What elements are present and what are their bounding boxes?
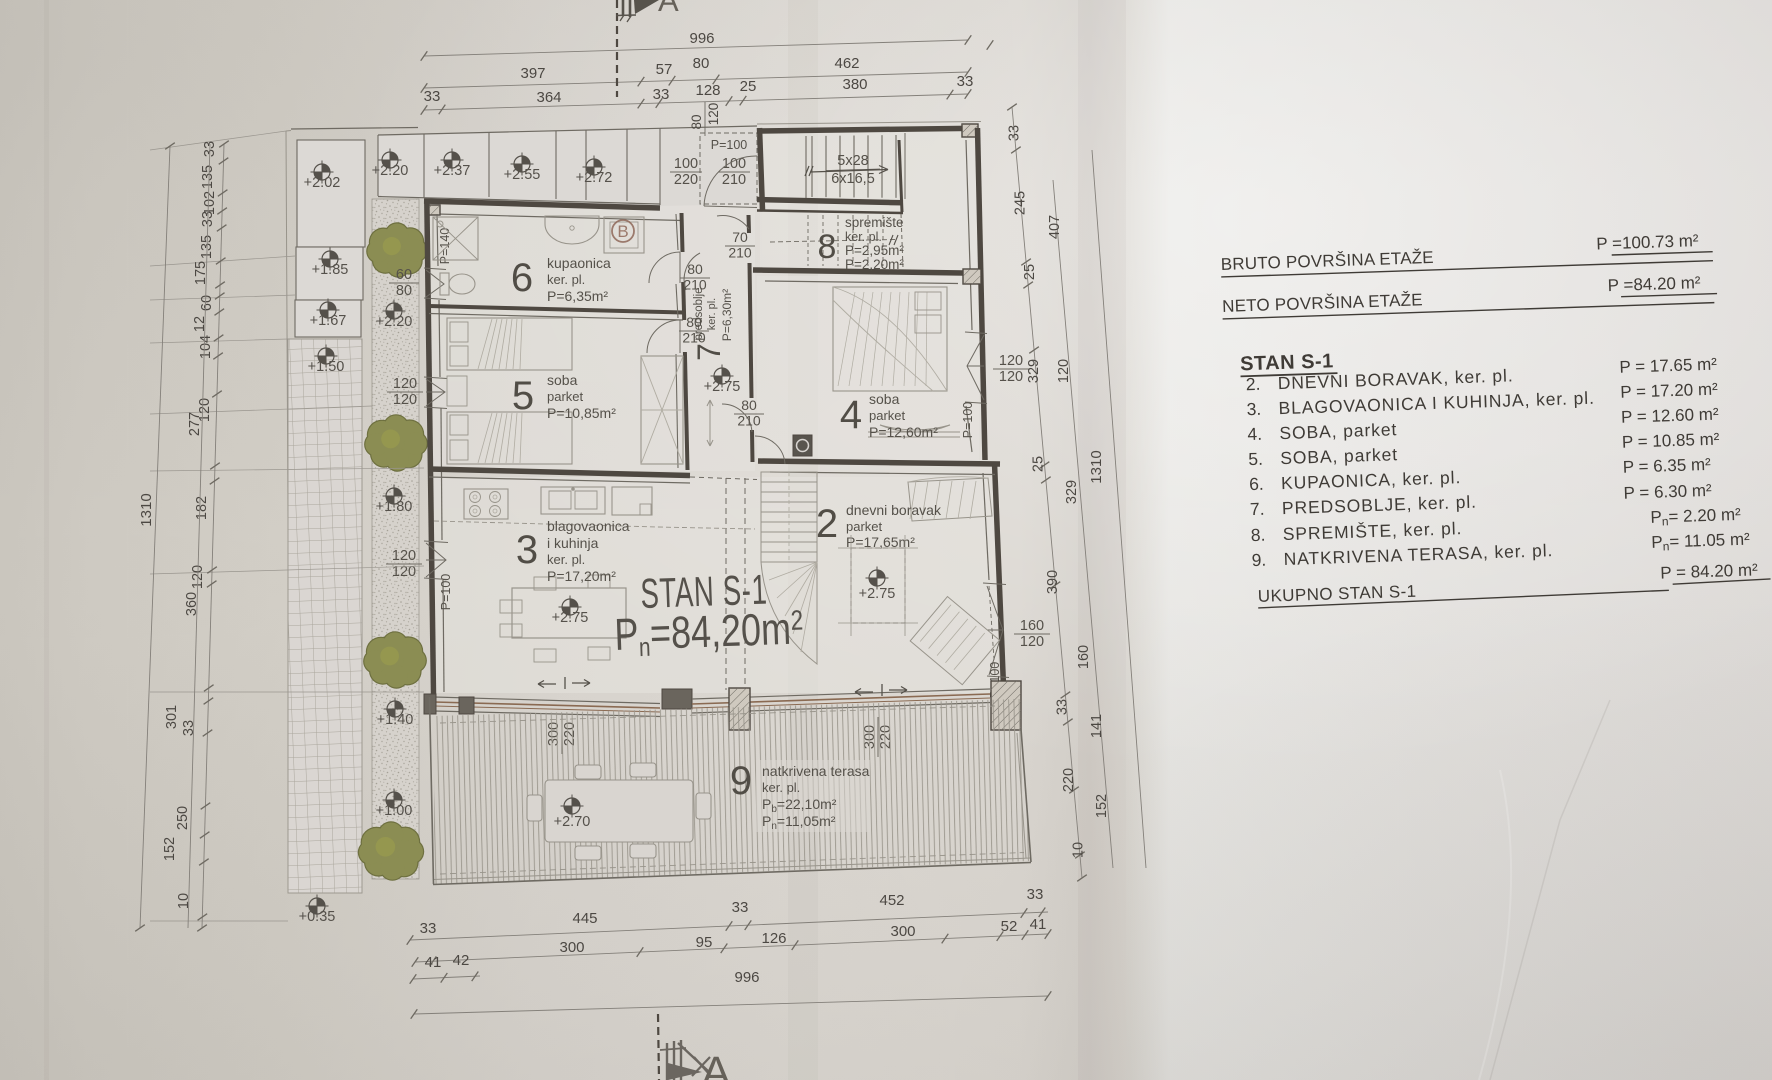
svg-text:3: 3 [516, 528, 538, 572]
svg-text:25: 25 [1030, 456, 1046, 472]
svg-text:ker. pl.: ker. pl. [762, 780, 800, 795]
svg-text:P=100: P=100 [961, 402, 975, 439]
svg-text:445: 445 [572, 910, 597, 927]
svg-text:P = 6.30 m²: P = 6.30 m² [1623, 481, 1712, 503]
svg-text:parket: parket [869, 408, 906, 423]
svg-text:+1.85: +1.85 [312, 262, 349, 278]
svg-text:33: 33 [957, 73, 974, 90]
svg-text:120: 120 [1056, 359, 1072, 383]
svg-text:P=17,20m²: P=17,20m² [547, 568, 616, 584]
svg-text:+1.00: +1.00 [376, 803, 413, 819]
svg-text:ker. pl.: ker. pl. [845, 230, 882, 244]
svg-text:152: 152 [1094, 794, 1110, 818]
svg-text:ker. pl.: ker. pl. [547, 272, 585, 287]
svg-text:+1.40: +1.40 [377, 712, 414, 728]
svg-text:60: 60 [396, 267, 412, 283]
svg-text:996: 996 [689, 30, 714, 47]
svg-text:P = 6.35 m²: P = 6.35 m² [1622, 455, 1711, 477]
svg-text:+2.75: +2.75 [552, 610, 589, 626]
svg-text:95: 95 [696, 934, 713, 951]
svg-text:spremište: spremište [845, 215, 904, 230]
svg-text:25: 25 [740, 78, 757, 95]
svg-text:P =84.20 m²: P =84.20 m² [1607, 273, 1701, 295]
svg-text:160: 160 [1076, 645, 1092, 669]
svg-text:60: 60 [199, 295, 215, 311]
svg-text:70: 70 [732, 229, 748, 245]
svg-text:SOBA, parket: SOBA, parket [1279, 419, 1397, 443]
svg-text:soba: soba [869, 391, 900, 407]
svg-text:+1.67: +1.67 [310, 313, 347, 329]
svg-text:452: 452 [879, 892, 904, 909]
svg-text:407: 407 [1047, 215, 1063, 239]
svg-text:2.: 2. [1245, 374, 1260, 394]
svg-text:33: 33 [653, 86, 670, 103]
svg-text:277: 277 [187, 412, 203, 436]
svg-text:P =100.73 m²: P =100.73 m² [1596, 231, 1699, 253]
svg-text:120: 120 [392, 548, 416, 564]
svg-text:+0.35: +0.35 [299, 909, 336, 925]
svg-text:33: 33 [1054, 699, 1070, 715]
svg-text:160: 160 [1020, 618, 1044, 634]
svg-text:P=2,20m²: P=2,20m² [845, 257, 904, 272]
svg-text:6: 6 [511, 256, 533, 300]
svg-text:126: 126 [761, 930, 786, 947]
svg-text:220: 220 [674, 172, 698, 188]
svg-text:301: 301 [164, 705, 180, 729]
svg-text:33: 33 [732, 899, 749, 916]
svg-text:9: 9 [730, 759, 752, 803]
svg-text:120: 120 [393, 376, 417, 392]
svg-text:57: 57 [656, 61, 673, 78]
svg-text:10: 10 [176, 893, 192, 909]
svg-text:182: 182 [194, 496, 210, 520]
svg-text:SOBA, parket: SOBA, parket [1280, 444, 1398, 468]
svg-text:7: 7 [691, 343, 727, 361]
svg-text:P=12,60m²: P=12,60m² [869, 424, 938, 440]
svg-text:120: 120 [1020, 634, 1044, 650]
svg-text:+2.75: +2.75 [859, 586, 896, 602]
svg-text:natkrivena terasa: natkrivena terasa [762, 763, 870, 779]
svg-text:100: 100 [674, 156, 698, 172]
svg-text:80: 80 [396, 283, 412, 299]
svg-text:462: 462 [834, 55, 859, 72]
svg-text:120: 120 [999, 353, 1023, 369]
svg-text:+2.20: +2.20 [376, 314, 413, 330]
svg-text:3.: 3. [1246, 399, 1261, 419]
svg-text:120: 120 [706, 103, 721, 126]
svg-text:9.: 9. [1251, 550, 1266, 570]
svg-text:kupaonica: kupaonica [547, 255, 611, 271]
svg-text:25: 25 [1022, 264, 1038, 280]
svg-text:4: 4 [840, 393, 862, 437]
svg-text:ker. pl.: ker. pl. [706, 298, 718, 330]
svg-text:42: 42 [453, 952, 470, 969]
svg-text:128: 128 [695, 82, 720, 99]
svg-text:parket: parket [547, 389, 584, 404]
svg-text:80: 80 [741, 397, 757, 413]
svg-text:P=10,85m²: P=10,85m² [547, 405, 616, 421]
svg-text:210: 210 [728, 244, 752, 260]
svg-text:P=100: P=100 [711, 138, 748, 152]
svg-text:10: 10 [1070, 842, 1086, 858]
svg-text:P=2,95m²: P=2,95m² [845, 243, 904, 258]
svg-text:7.: 7. [1250, 499, 1265, 519]
svg-text:5x28: 5x28 [837, 153, 868, 169]
svg-text:245: 245 [1013, 191, 1029, 215]
svg-text:141: 141 [1089, 714, 1105, 738]
svg-text:52: 52 [1001, 918, 1018, 935]
svg-text:P = 17.65 m²: P = 17.65 m² [1619, 355, 1717, 377]
svg-text:5: 5 [512, 374, 534, 418]
svg-text:329: 329 [1026, 359, 1042, 383]
svg-text:A: A [701, 1048, 731, 1080]
svg-text:+2.02: +2.02 [304, 175, 341, 191]
svg-text:300: 300 [890, 923, 915, 940]
svg-text:1310: 1310 [1088, 450, 1105, 483]
svg-text:210: 210 [737, 412, 761, 428]
svg-text:+2.37: +2.37 [434, 163, 471, 179]
svg-text:P = 10.85 m²: P = 10.85 m² [1622, 430, 1720, 452]
svg-text:+2.72: +2.72 [576, 170, 613, 186]
svg-text:120: 120 [999, 369, 1023, 385]
svg-text:996: 996 [734, 969, 759, 986]
svg-text:33: 33 [181, 720, 197, 736]
svg-text:390: 390 [1045, 570, 1061, 594]
svg-text:B: B [617, 222, 628, 241]
svg-text:220: 220 [1061, 768, 1077, 792]
svg-text:8.: 8. [1250, 525, 1265, 545]
svg-text:P = 12.60 m²: P = 12.60 m² [1621, 405, 1719, 427]
svg-text:41: 41 [1030, 916, 1047, 933]
svg-text:135: 135 [200, 165, 216, 189]
svg-text:predsoblje: predsoblje [693, 287, 705, 340]
svg-text:blagovaonica: blagovaonica [547, 518, 630, 534]
svg-text:+2.70: +2.70 [554, 814, 591, 830]
svg-text:+1.50: +1.50 [308, 359, 345, 375]
svg-text:33: 33 [420, 920, 437, 937]
svg-text:33: 33 [1006, 125, 1022, 141]
svg-text:380: 380 [842, 76, 867, 93]
svg-text:329: 329 [1064, 480, 1080, 504]
svg-text:12: 12 [192, 316, 208, 332]
svg-text:120: 120 [393, 392, 417, 408]
svg-text:6x16,5: 6x16,5 [831, 171, 875, 187]
svg-text:i kuhinja: i kuhinja [547, 535, 599, 551]
svg-text:dnevni boravak: dnevni boravak [846, 502, 942, 518]
svg-text:210: 210 [722, 172, 746, 188]
svg-text:80: 80 [689, 114, 704, 129]
svg-text:+2.75: +2.75 [704, 379, 741, 395]
svg-text:P = 84.20 m²: P = 84.20 m² [1660, 560, 1758, 582]
svg-text:1310: 1310 [138, 493, 155, 526]
svg-text:8: 8 [818, 228, 837, 266]
svg-text:6.: 6. [1249, 474, 1264, 494]
svg-text:P=6,35m²: P=6,35m² [547, 288, 608, 304]
svg-text:80: 80 [687, 261, 703, 277]
svg-text:P = 17.20 m²: P = 17.20 m² [1620, 380, 1718, 402]
svg-text:300: 300 [559, 939, 584, 956]
svg-text:P=100: P=100 [439, 574, 453, 611]
svg-text:250: 250 [175, 806, 191, 830]
svg-text:parket: parket [846, 519, 883, 534]
svg-text:100: 100 [722, 156, 746, 172]
svg-text:33: 33 [424, 88, 441, 105]
svg-text:ker. pl.: ker. pl. [547, 552, 585, 567]
svg-text:152: 152 [162, 837, 178, 861]
svg-text:397: 397 [520, 65, 545, 82]
svg-text:41: 41 [425, 954, 442, 971]
svg-text:104: 104 [198, 335, 214, 359]
svg-text:A: A [658, 0, 679, 18]
svg-text:364: 364 [536, 89, 561, 106]
svg-text:+1.80: +1.80 [376, 499, 413, 515]
svg-text:P=6,30m²: P=6,30m² [720, 289, 734, 341]
svg-text:4.: 4. [1247, 424, 1262, 444]
svg-text:+2.20: +2.20 [372, 163, 409, 179]
svg-text:2: 2 [816, 502, 838, 546]
svg-text:5.: 5. [1248, 449, 1263, 469]
svg-text:soba: soba [547, 372, 578, 388]
svg-text:+2.55: +2.55 [504, 167, 541, 183]
svg-text:80: 80 [693, 55, 710, 72]
svg-text:33: 33 [1027, 886, 1044, 903]
